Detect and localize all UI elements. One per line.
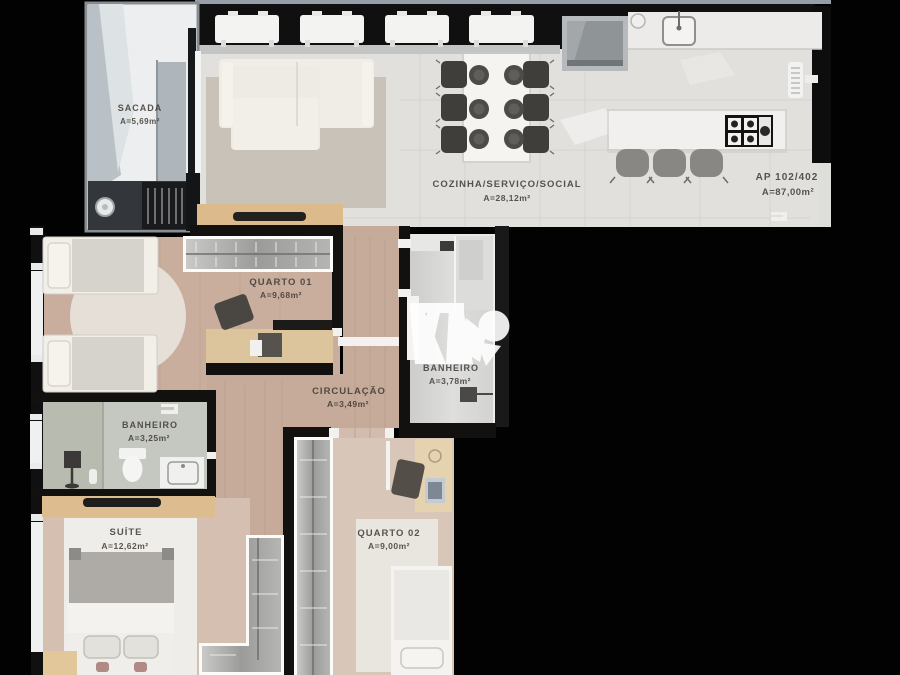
svg-text:QUARTO 02: QUARTO 02 xyxy=(357,528,420,539)
svg-text:BANHEIRO: BANHEIRO xyxy=(122,420,178,430)
svg-text:A=3,49m²: A=3,49m² xyxy=(327,399,369,409)
svg-text:A=5,69m²: A=5,69m² xyxy=(120,117,160,126)
svg-text:SACADA: SACADA xyxy=(118,103,163,113)
svg-text:A=9,68m²: A=9,68m² xyxy=(260,290,302,300)
svg-text:BANHEIRO: BANHEIRO xyxy=(423,363,479,373)
svg-text:SUÍTE: SUÍTE xyxy=(110,527,143,538)
svg-text:QUARTO 01: QUARTO 01 xyxy=(249,277,312,288)
svg-text:AP 102/402: AP 102/402 xyxy=(756,172,819,183)
svg-text:A=87,00m²: A=87,00m² xyxy=(762,187,814,198)
svg-text:COZINHA/SERVIÇO/SOCIAL: COZINHA/SERVIÇO/SOCIAL xyxy=(432,179,581,190)
svg-text:A=3,25m²: A=3,25m² xyxy=(128,433,170,443)
svg-text:A=9,00m²: A=9,00m² xyxy=(368,541,410,551)
svg-text:A=3,78m²: A=3,78m² xyxy=(429,376,471,386)
svg-text:CIRCULAÇÃO: CIRCULAÇÃO xyxy=(312,386,386,397)
svg-text:A=12,62m²: A=12,62m² xyxy=(101,541,148,551)
svg-text:A=28,12m²: A=28,12m² xyxy=(483,193,530,203)
